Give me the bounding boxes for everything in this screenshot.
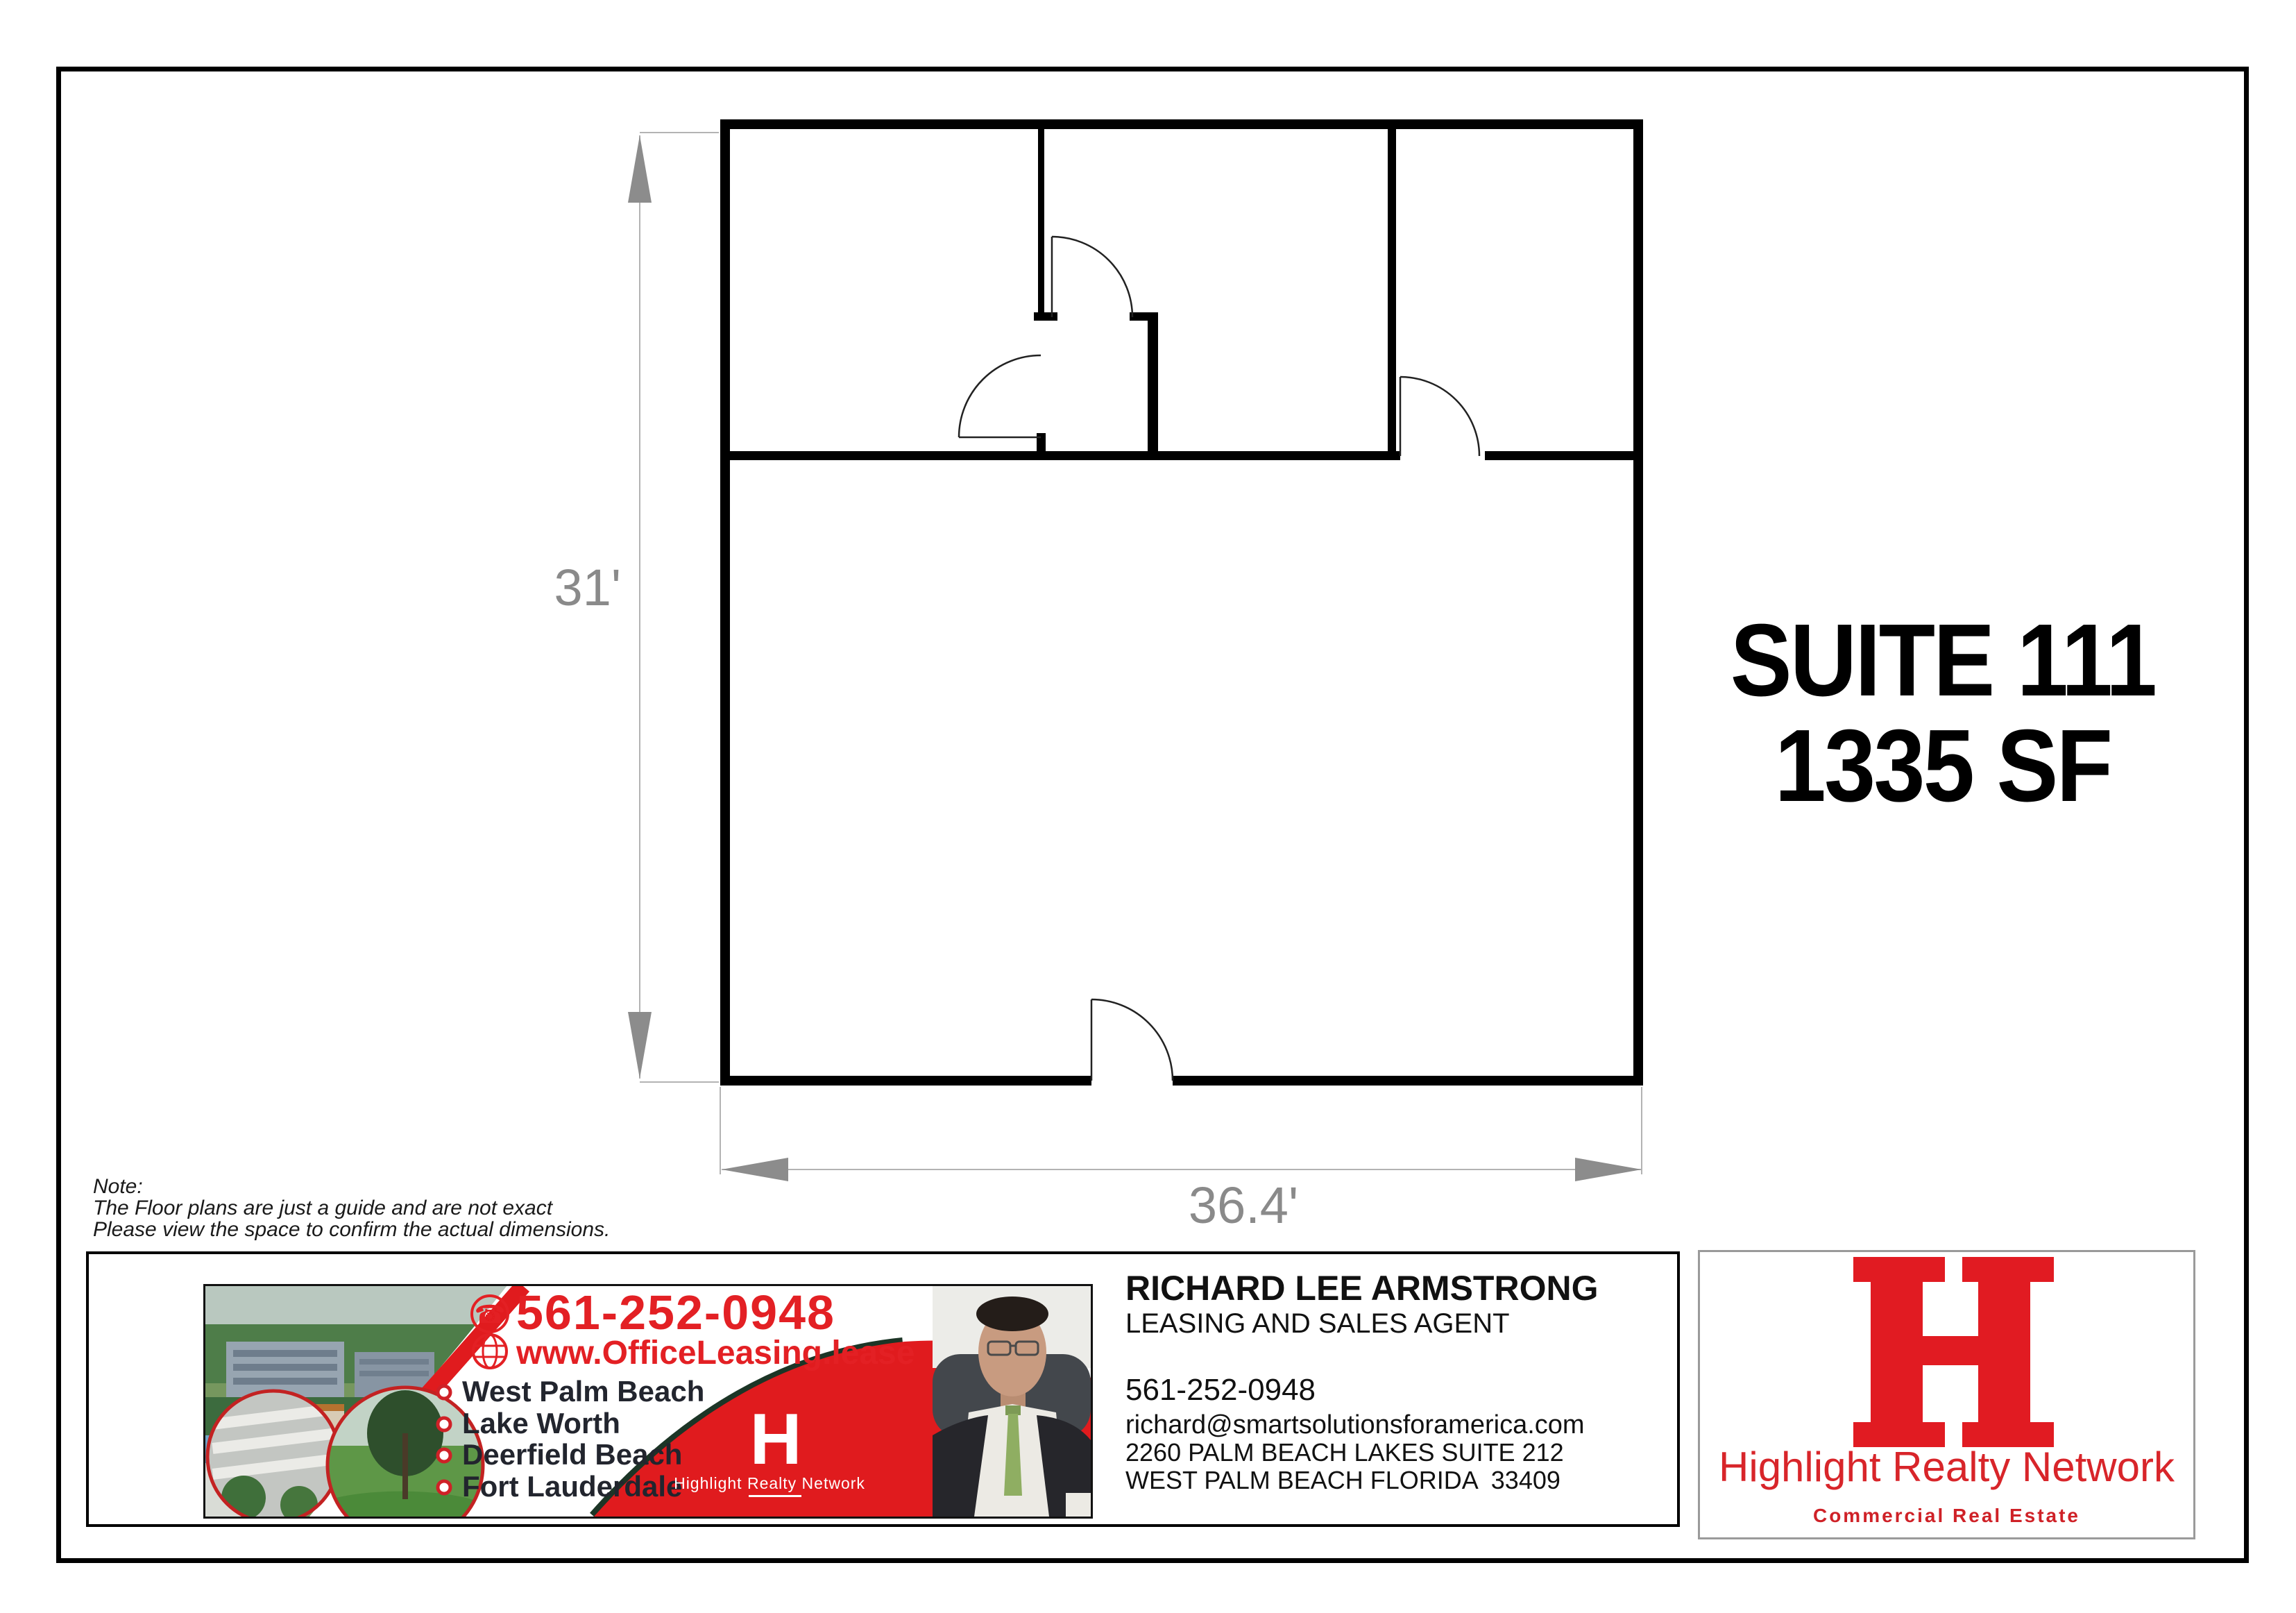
- dim-label-height: 31': [554, 559, 621, 616]
- dim-arrow-left-icon: [722, 1158, 788, 1181]
- agent-phone: 561-252-0948: [1125, 1373, 1316, 1408]
- agent-title: LEASING AND SALES AGENT: [1125, 1308, 1510, 1340]
- wall-bottom-left-segment: [720, 1076, 1091, 1086]
- wall-interior-1-upper: [1038, 129, 1044, 315]
- wall-interior-1-jamb-top: [1034, 312, 1057, 321]
- globe-icon: [473, 1335, 507, 1368]
- ad-h-logo: H: [749, 1399, 801, 1480]
- agent-email: richard@smartsolutionsforamerica.com: [1125, 1410, 1585, 1440]
- floor-plan-drawing: 31' 36.4': [513, 97, 1707, 1263]
- city-item: Deerfield Beach: [462, 1438, 682, 1471]
- note-line-2: Please view the space to confirm the act…: [93, 1219, 610, 1240]
- agent-address-line-1: 2260 PALM BEACH LAKES SUITE 212: [1125, 1438, 1564, 1467]
- dim-label-width: 36.4': [1189, 1176, 1298, 1234]
- svg-text:☎: ☎: [475, 1300, 506, 1328]
- suite-title: SUITE 111 1335 SF: [1681, 608, 2205, 819]
- brand-logo-box: Highlight Realty Network Commercial Real…: [1698, 1250, 2195, 1539]
- dim-arrow-up-icon: [628, 135, 652, 203]
- wall-notch-vertical: [1148, 312, 1158, 460]
- wall-right: [1633, 119, 1643, 1086]
- door-arc-middle-room: [1052, 237, 1132, 317]
- agent-address-line-2: WEST PALM BEACH FLORIDA 33409: [1125, 1466, 1561, 1495]
- wall-left: [720, 119, 730, 1086]
- wall-interior-horizontal-right: [1485, 451, 1633, 460]
- city-item: Fort Lauderdale: [462, 1470, 682, 1503]
- door-arc-left-room: [959, 355, 1041, 437]
- disclaimer-note: Note: The Floor plans are just a guide a…: [93, 1176, 610, 1240]
- wall-interior-2: [1388, 129, 1396, 460]
- note-line-1: The Floor plans are just a guide and are…: [93, 1197, 610, 1219]
- ad-phone-number: 561-252-0948: [516, 1286, 835, 1340]
- ad-network-underline: [749, 1495, 801, 1497]
- ad-network-label: Highlight Realty Network: [674, 1474, 865, 1492]
- note-heading: Note:: [93, 1176, 610, 1197]
- city-list: West Palm Beach Lake Worth Deerfield Bea…: [438, 1375, 704, 1503]
- wall-bottom-right-segment: [1173, 1076, 1643, 1086]
- agent-photo: [933, 1286, 1091, 1517]
- flyer-page: 31' 36.4' SUITE 111 1335 SF Note: The Fl…: [0, 0, 2296, 1613]
- dim-arrow-down-icon: [628, 1012, 652, 1079]
- wall-interior-horizontal-left: [730, 451, 1400, 460]
- city-bullet-icon: [438, 1418, 450, 1430]
- city-item: West Palm Beach: [462, 1375, 704, 1408]
- suite-area: 1335 SF: [1681, 713, 2205, 819]
- brand-tagline: Commercial Real Estate: [1700, 1505, 2193, 1527]
- advertisement-collage: ☎ 561-252-0948 www.OfficeLeasing.lease W…: [205, 1286, 1091, 1517]
- brand-name: Highlight Realty Network: [1700, 1445, 2193, 1489]
- suite-number: SUITE 111: [1681, 608, 2205, 713]
- door-arc-right-room: [1400, 377, 1479, 456]
- ad-website: www.OfficeLeasing.lease: [516, 1335, 915, 1371]
- dim-arrow-right-icon: [1575, 1158, 1642, 1181]
- agent-banner-box: ☎ 561-252-0948 www.OfficeLeasing.lease W…: [86, 1251, 1680, 1527]
- city-bullet-icon: [438, 1449, 450, 1462]
- door-arc-entrance: [1091, 999, 1173, 1081]
- advertisement-image: ☎ 561-252-0948 www.OfficeLeasing.lease W…: [203, 1284, 1093, 1519]
- agent-name: RICHARD LEE ARMSTRONG: [1125, 1268, 1598, 1308]
- wall-top: [720, 119, 1643, 129]
- phone-icon: ☎: [472, 1296, 508, 1332]
- city-bullet-icon: [438, 1386, 450, 1399]
- city-bullet-icon: [438, 1481, 450, 1494]
- brand-h-logo: [1851, 1257, 2054, 1447]
- city-item: Lake Worth: [462, 1407, 620, 1439]
